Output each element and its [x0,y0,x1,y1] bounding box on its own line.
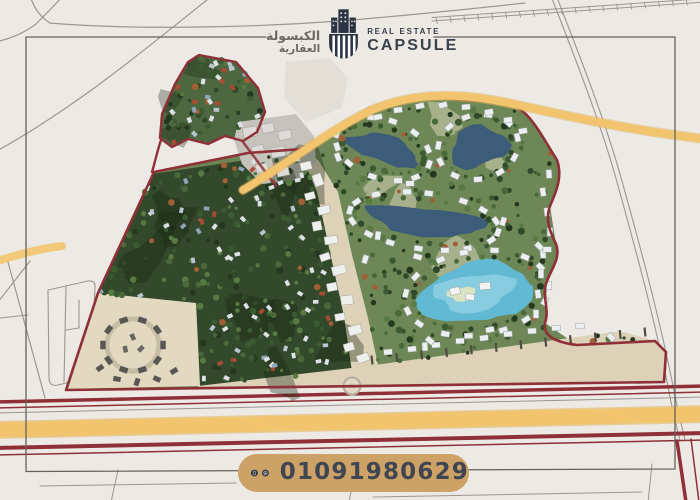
brand-logo: الكبسولة العقارية [266,6,458,64]
contact-pill[interactable]: 01091980629 [238,454,469,492]
mobile-phone-icon [251,460,258,486]
brand-english-line2: CAPSULE [367,37,458,55]
masterplan-map [0,0,700,500]
poster: الكبسولة العقارية [0,0,700,500]
brand-english-line1: REAL ESTATE [367,27,458,36]
capsule-building-icon [325,7,362,63]
brand-english-name: REAL ESTATE CAPSULE [367,27,458,55]
brand-arabic-line2: العقارية [266,43,320,56]
whatsapp-icon [262,460,269,486]
brand-arabic-name: الكبسولة العقارية [266,28,320,56]
phone-number: 01091980629 [280,459,469,485]
brand-arabic-line1: الكبسولة [266,28,320,43]
